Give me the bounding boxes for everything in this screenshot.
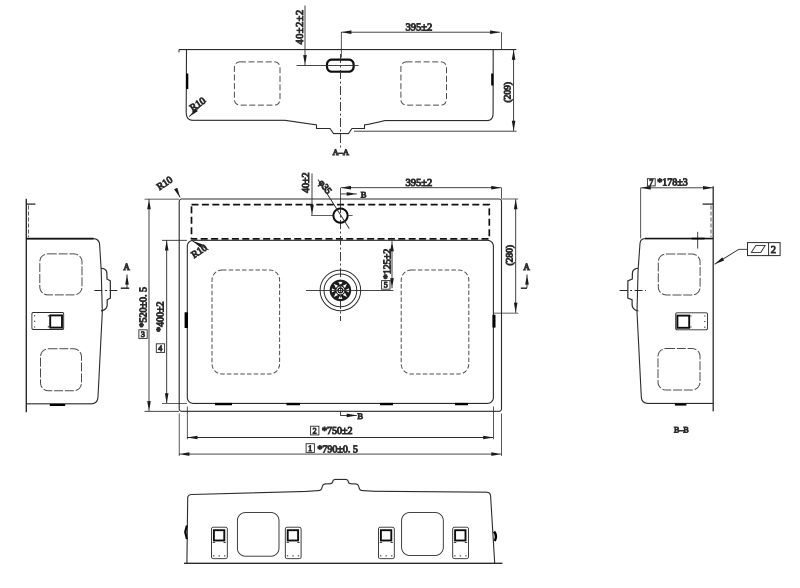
svg-text:(209): (209) (503, 82, 514, 103)
svg-text:A: A (523, 262, 530, 272)
svg-text:(280): (280) (505, 245, 516, 266)
svg-text:7: 7 (649, 178, 653, 187)
svg-text:3: 3 (141, 330, 145, 339)
svg-text:*520±0. 5: *520±0. 5 (138, 287, 149, 328)
svg-text:40±2: 40±2 (301, 173, 312, 194)
svg-text:1: 1 (308, 444, 312, 453)
svg-text:40±2±2: 40±2±2 (295, 9, 306, 44)
svg-text:R10: R10 (190, 243, 210, 261)
svg-text:395±2: 395±2 (406, 22, 433, 33)
svg-text:*178±3: *178±3 (657, 178, 688, 189)
svg-text:4: 4 (158, 344, 162, 353)
svg-text:B–B: B–B (674, 425, 689, 434)
svg-text:*750±2: *750±2 (322, 426, 353, 437)
svg-text:φ35: φ35 (316, 178, 333, 196)
svg-text:*400±2: *400±2 (156, 302, 167, 333)
svg-text:R10: R10 (155, 175, 175, 193)
svg-text:*125±2: *125±2 (383, 249, 394, 280)
svg-text:R10: R10 (188, 96, 208, 114)
svg-text:395±2: 395±2 (406, 178, 433, 189)
svg-text:B: B (357, 411, 363, 421)
svg-text:A–A: A–A (333, 147, 350, 157)
svg-text:2: 2 (313, 426, 317, 435)
svg-text:2: 2 (771, 245, 776, 256)
svg-text:B: B (361, 190, 367, 200)
svg-text:5: 5 (384, 281, 388, 290)
svg-text:*790±0. 5: *790±0. 5 (317, 444, 358, 455)
svg-text:A: A (123, 262, 130, 272)
